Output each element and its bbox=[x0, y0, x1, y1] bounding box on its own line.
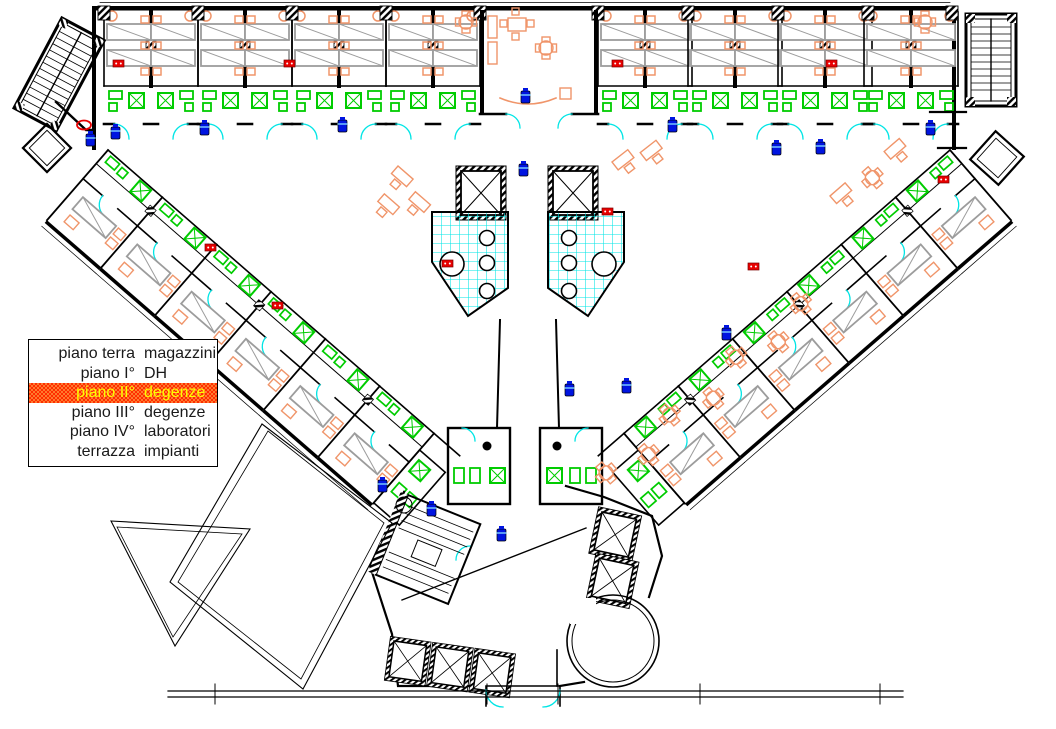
left-stair-tower bbox=[14, 18, 104, 172]
south-core bbox=[368, 486, 662, 707]
courtyard-right bbox=[548, 212, 624, 316]
use-label: DH bbox=[144, 364, 167, 384]
central-core bbox=[432, 166, 624, 504]
floor-label: piano I° bbox=[29, 364, 144, 384]
floor-label: piano IV° bbox=[29, 422, 144, 442]
use-label: impianti bbox=[144, 442, 199, 462]
tip-rooms bbox=[448, 428, 602, 504]
floor-label: piano II° bbox=[29, 383, 144, 403]
floor-legend: piano terra magazzini piano I° DH piano … bbox=[28, 339, 218, 467]
floor-label: piano terra bbox=[29, 344, 144, 364]
legend-row-piano-3[interactable]: piano III° degenze bbox=[29, 403, 217, 423]
legend-row-piano-4[interactable]: piano IV° laboratori bbox=[29, 422, 217, 442]
legend-row-piano-1[interactable]: piano I° DH bbox=[29, 364, 217, 384]
elevator-bank-east bbox=[579, 507, 648, 609]
use-label: magazzini bbox=[144, 344, 216, 364]
rotunda bbox=[567, 595, 659, 687]
office-right bbox=[612, 132, 668, 184]
ground-line bbox=[168, 684, 903, 704]
elevator-bank-south bbox=[384, 636, 515, 697]
floor-label: terrazza bbox=[29, 442, 144, 462]
use-label: degenze bbox=[144, 383, 205, 403]
use-label: degenze bbox=[144, 403, 205, 423]
legend-row-piano-2-selected[interactable]: piano II° degenze bbox=[29, 383, 217, 403]
legend-row-piano-terra[interactable]: piano terra magazzini bbox=[29, 344, 217, 364]
use-label: laboratori bbox=[144, 422, 211, 442]
top-wing bbox=[92, 3, 958, 151]
floor-plan-page: piano terra magazzini piano I° DH piano … bbox=[0, 0, 1056, 729]
legend-row-terrazza[interactable]: terrazza impianti bbox=[29, 442, 217, 462]
floor-label: piano III° bbox=[29, 403, 144, 423]
common-room-furniture bbox=[488, 8, 571, 104]
office-left bbox=[366, 166, 436, 236]
right-wing bbox=[598, 150, 1016, 532]
